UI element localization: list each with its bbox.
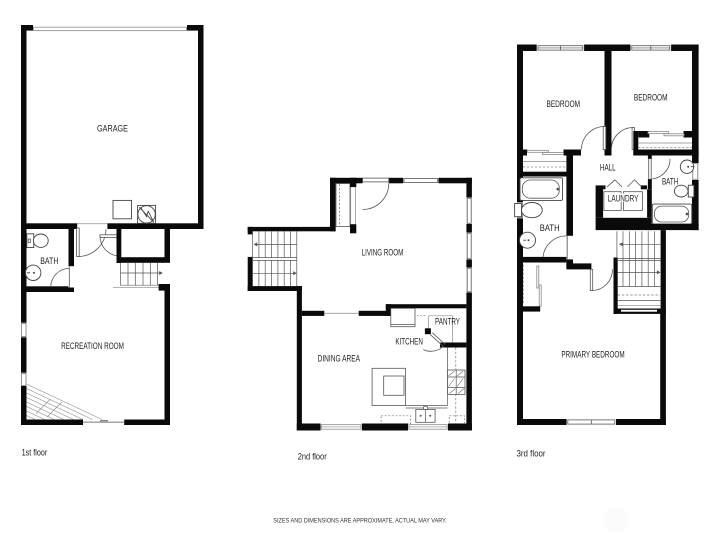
svg-text:PRIMARY BEDROOM: PRIMARY BEDROOM [561,349,624,359]
svg-text:BEDROOM: BEDROOM [634,93,668,103]
svg-text:DINING AREA: DINING AREA [318,353,360,363]
svg-text:LIVING ROOM: LIVING ROOM [362,247,404,257]
svg-text:SIZES AND DIMENSIONS ARE APPRO: SIZES AND DIMENSIONS ARE APPROXIMATE, AC… [273,518,446,525]
svg-text:RECREATION ROOM: RECREATION ROOM [61,341,124,351]
svg-text:1st floor: 1st floor [22,448,48,459]
svg-text:GARAGE: GARAGE [97,123,128,133]
svg-text:KITCHEN: KITCHEN [395,337,423,347]
svg-text:HALL: HALL [600,162,616,172]
svg-text:BATH: BATH [540,223,560,233]
svg-text:BATH: BATH [40,256,58,266]
svg-text:LAUNDRY: LAUNDRY [608,193,639,203]
svg-text:BATH: BATH [662,176,678,186]
svg-text:3rd floor: 3rd floor [517,449,546,460]
svg-text:2nd floor: 2nd floor [298,452,327,463]
svg-text:PANTRY: PANTRY [435,316,460,326]
svg-text:BEDROOM: BEDROOM [547,99,581,109]
